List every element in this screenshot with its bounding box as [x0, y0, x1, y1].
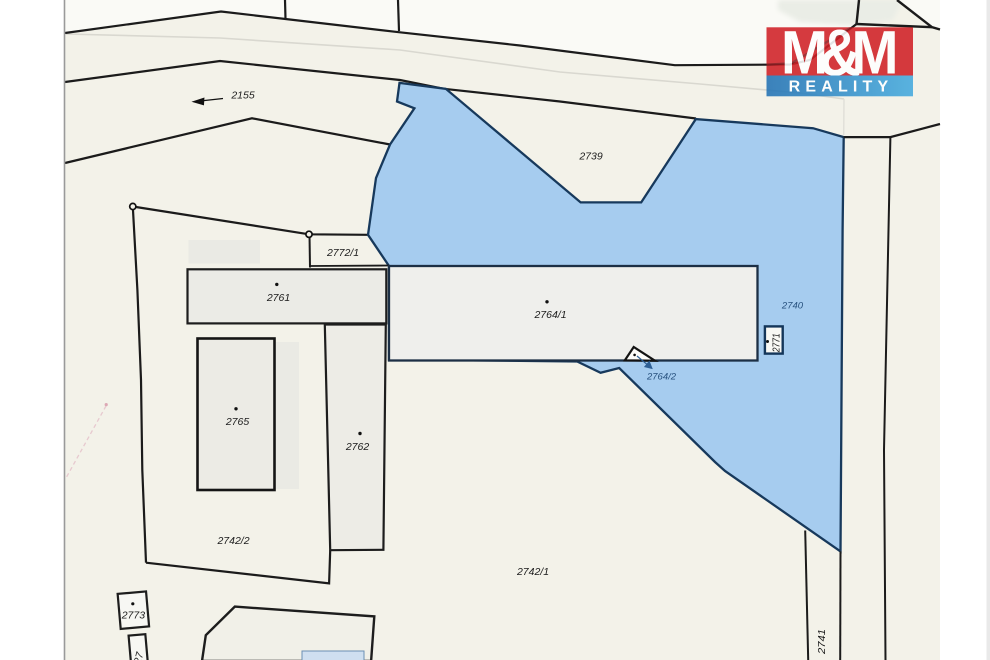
svg-text:2761: 2761 — [266, 292, 290, 304]
svg-text:2772/1: 2772/1 — [326, 247, 359, 259]
svg-text:2739: 2739 — [578, 151, 603, 163]
svg-text:REALITY: REALITY — [789, 79, 894, 96]
svg-text:2765: 2765 — [225, 416, 250, 428]
svg-text:2742/1: 2742/1 — [516, 566, 549, 578]
svg-text:2762: 2762 — [345, 441, 370, 453]
svg-text:2771: 2771 — [771, 333, 783, 353]
svg-text:2742/2: 2742/2 — [216, 535, 249, 547]
svg-text:2740: 2740 — [781, 301, 804, 312]
svg-text:2155: 2155 — [230, 90, 255, 102]
svg-text:2773: 2773 — [121, 610, 146, 622]
svg-text:2764/1: 2764/1 — [533, 309, 566, 321]
svg-text:2741: 2741 — [816, 629, 828, 655]
svg-text:2764/2: 2764/2 — [646, 372, 677, 383]
